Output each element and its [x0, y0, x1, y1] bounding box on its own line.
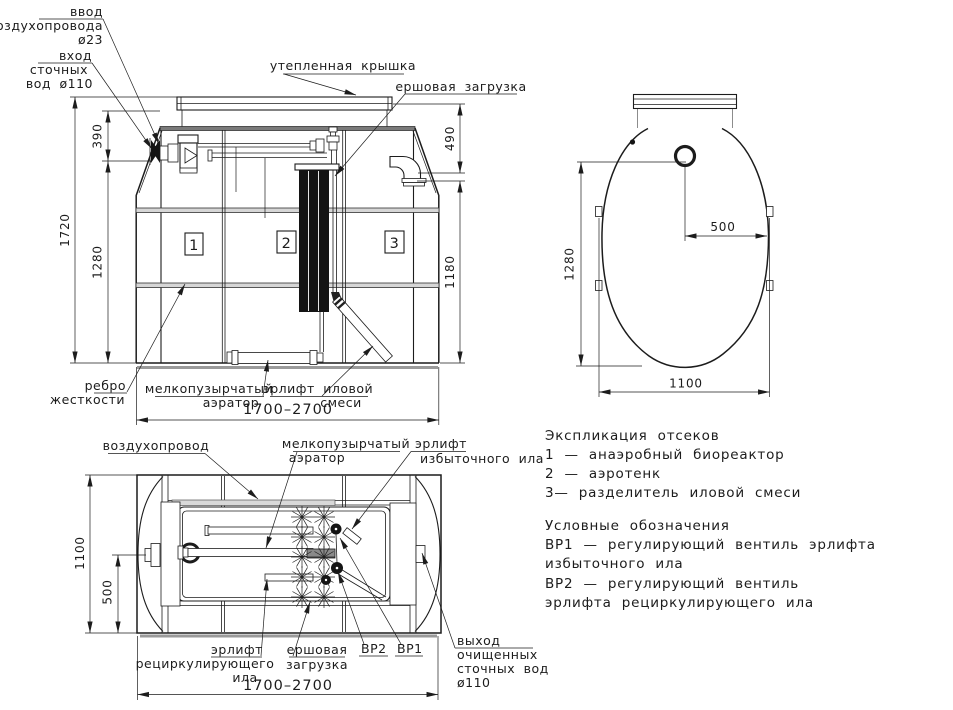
dim-1100-top: 1100 — [669, 377, 703, 391]
cad-drawing-page: 1 2 3 ввод воздухопровода ø23 вход сточн… — [0, 0, 953, 710]
dim-390: 390 — [91, 123, 105, 148]
plan-right-panel — [390, 503, 416, 605]
leader-cover — [284, 74, 356, 95]
top-view-dimensions: 500 1280 1100 — [563, 162, 770, 397]
outlet-label-line2: очищенных — [457, 647, 538, 662]
legend-heading-compartments: Экспликация отсеков — [545, 428, 719, 444]
legend-vr2-line1: ВР2 — регулирующий вентиль — [545, 576, 799, 592]
legend-heading-symbols: Условные обозначения — [545, 518, 730, 534]
air-inlet-label-line2: воздухопровода — [0, 18, 103, 33]
front-view: 1 2 3 ввод воздухопровода ø23 вход сточн… — [0, 4, 527, 425]
plan-view: воздухопровод мелкопузырчатый аэратор эр… — [73, 436, 549, 700]
compartment-1-number: 1 — [189, 238, 199, 254]
brush-media-label: ершовая загрузка — [395, 79, 526, 94]
plan-inlet-stub — [145, 544, 160, 567]
outlet-elbow — [390, 157, 426, 187]
compartment-2-number: 2 — [282, 236, 292, 252]
air-duct-label: воздухопровод — [103, 438, 210, 453]
sewage-inlet-label-line2: сточных — [30, 62, 88, 77]
legend-compartment-2: 2 — аэротенк — [545, 466, 661, 482]
drawing-canvas: 1 2 3 ввод воздухопровода ø23 вход сточн… — [0, 0, 953, 710]
dim-500-plan: 500 — [101, 579, 115, 604]
legend-compartment-3: 3— разделитель иловой смеси — [545, 485, 801, 501]
outlet-label-line1: выход — [457, 633, 500, 648]
sewage-inlet-label-line3: вод ø110 — [26, 76, 93, 91]
dim-width-plan: 1700–2700 — [243, 678, 333, 694]
compartment-markers: 1 2 3 — [185, 231, 404, 255]
legend-vr1-line1: ВР1 — регулирующий вентиль эрлифта — [545, 537, 876, 553]
rib-label-line1: ребро — [85, 378, 126, 393]
dim-1280-top: 1280 — [563, 247, 577, 281]
dim-490: 490 — [443, 126, 457, 151]
excess-airlift-label-line1: эрлифт — [415, 436, 467, 451]
legend-vr1-line2: избыточного ила — [545, 556, 683, 572]
recirc-airlift-label-line1: эрлифт — [211, 642, 263, 657]
air-inlet-label-line1: ввод — [70, 4, 103, 19]
dim-1280-front: 1280 — [91, 245, 105, 279]
stiffening-rib-upper — [136, 208, 439, 213]
plan-left-panel — [161, 502, 180, 606]
recirc-airlift-label-line2: рециркулирующего — [136, 656, 275, 671]
sewage-inlet-label-line1: вход — [59, 48, 92, 63]
sludge-airlift-label-line1: эрлифт иловой — [263, 381, 373, 396]
dim-width-front: 1700–2700 — [243, 402, 333, 418]
legend-compartment-1: 1 — анаэробный биореактор — [545, 447, 785, 463]
top-view-vent-dot — [630, 139, 635, 144]
outlet-label-line4: ø110 — [457, 675, 491, 690]
top-view-pipe-opening — [676, 147, 695, 166]
leader-air-duct — [205, 454, 258, 500]
front-dimensions: 1720 390 1280 490 1180 1700–2700 — [58, 97, 465, 425]
dim-1720: 1720 — [58, 213, 72, 247]
vr2-label: ВР2 — [361, 641, 387, 656]
sludge-airlift-pipe — [331, 292, 392, 362]
plan-brush-label-line2: загрузка — [286, 657, 348, 672]
plan-outlet-stub — [416, 546, 425, 563]
front-labels: ввод воздухопровода ø23 вход сточных вод… — [0, 4, 527, 410]
brush-media-column — [295, 164, 339, 312]
legend-vr2-line2: эрлифта рециркулирующего ила — [545, 595, 814, 611]
legend-block: Экспликация отсеков 1 — анаэробный биоре… — [545, 428, 876, 611]
stiffening-rib-lower — [136, 283, 439, 288]
excess-airlift-label-line2: избыточного ила — [420, 451, 544, 466]
insulated-cover — [177, 97, 392, 127]
air-inlet-label-line3: ø23 — [78, 32, 103, 47]
dim-1100-plan: 1100 — [73, 536, 87, 570]
plan-aerator-label-line1: мелкопузырчатый — [282, 436, 410, 451]
top-view-side-tabs — [596, 207, 774, 291]
outlet-label-line3: сточных вод — [457, 661, 549, 676]
fine-bubble-aerator — [227, 312, 324, 365]
leader-air-inlet — [103, 19, 159, 144]
top-view-neck-flange — [634, 95, 737, 129]
insulated-cover-label: утепленная крышка — [270, 58, 416, 73]
compartment-3-number: 3 — [390, 236, 400, 252]
front-aerator-label-line1: мелкопузырчатый — [145, 381, 273, 396]
top-view: 500 1280 1100 — [563, 95, 774, 398]
rib-label-line2: жесткости — [50, 392, 125, 407]
plan-brush-label-line1: ершовая — [287, 642, 348, 657]
plan-air-manifold — [172, 500, 335, 506]
dim-500-top: 500 — [710, 220, 735, 234]
dim-1180: 1180 — [443, 255, 457, 289]
